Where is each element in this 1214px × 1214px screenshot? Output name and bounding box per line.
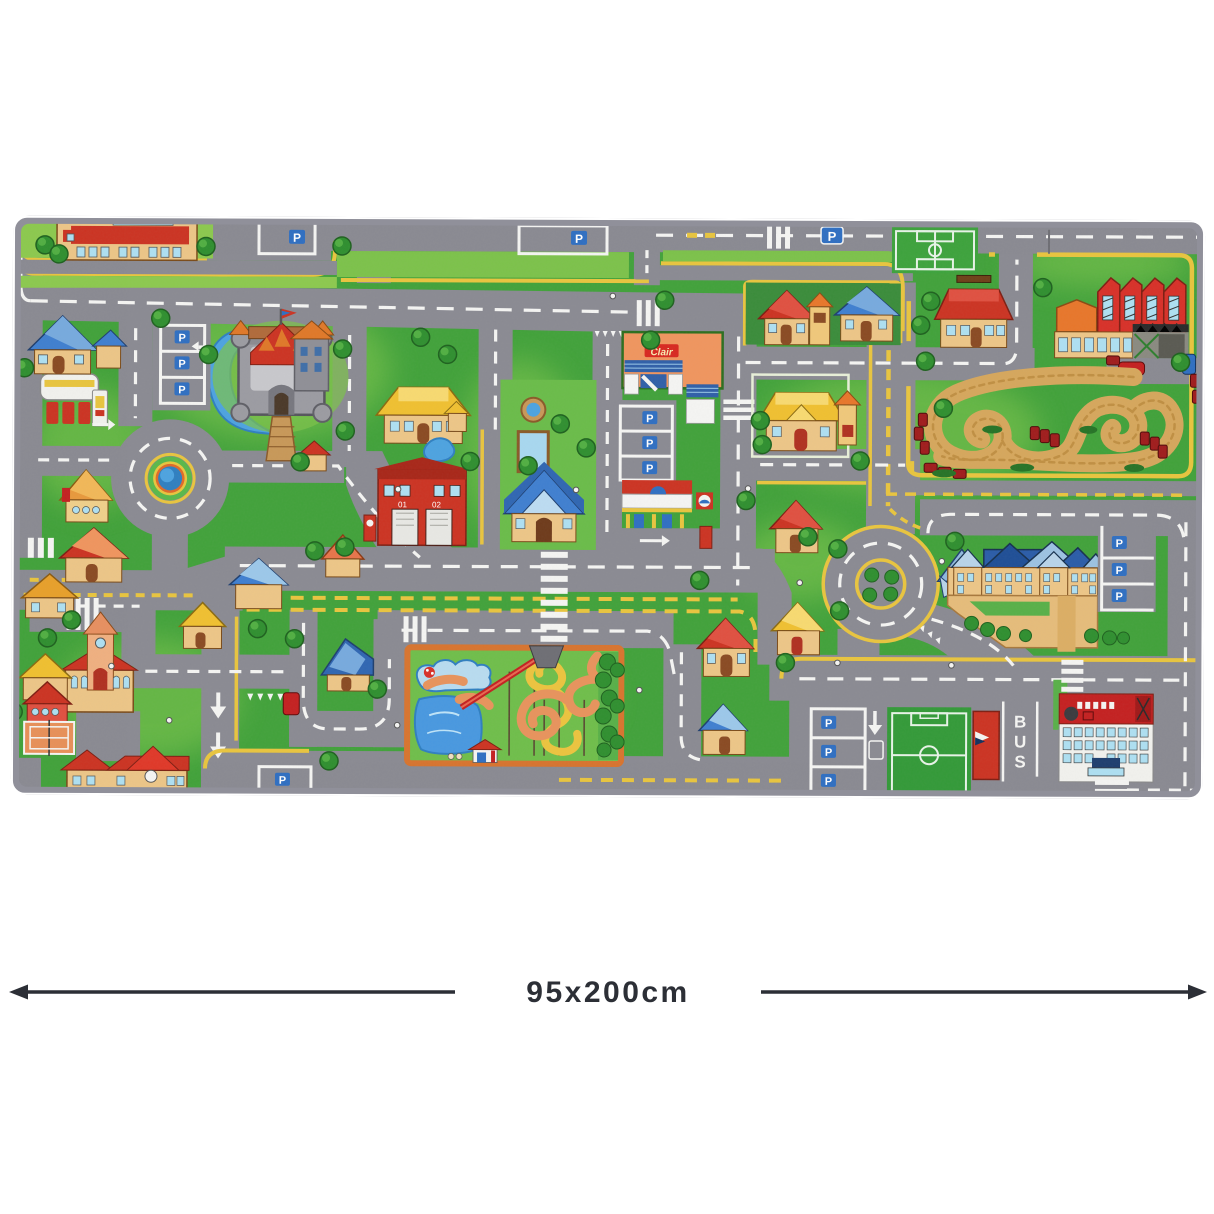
svg-text:95x200cm: 95x200cm xyxy=(526,976,689,1009)
